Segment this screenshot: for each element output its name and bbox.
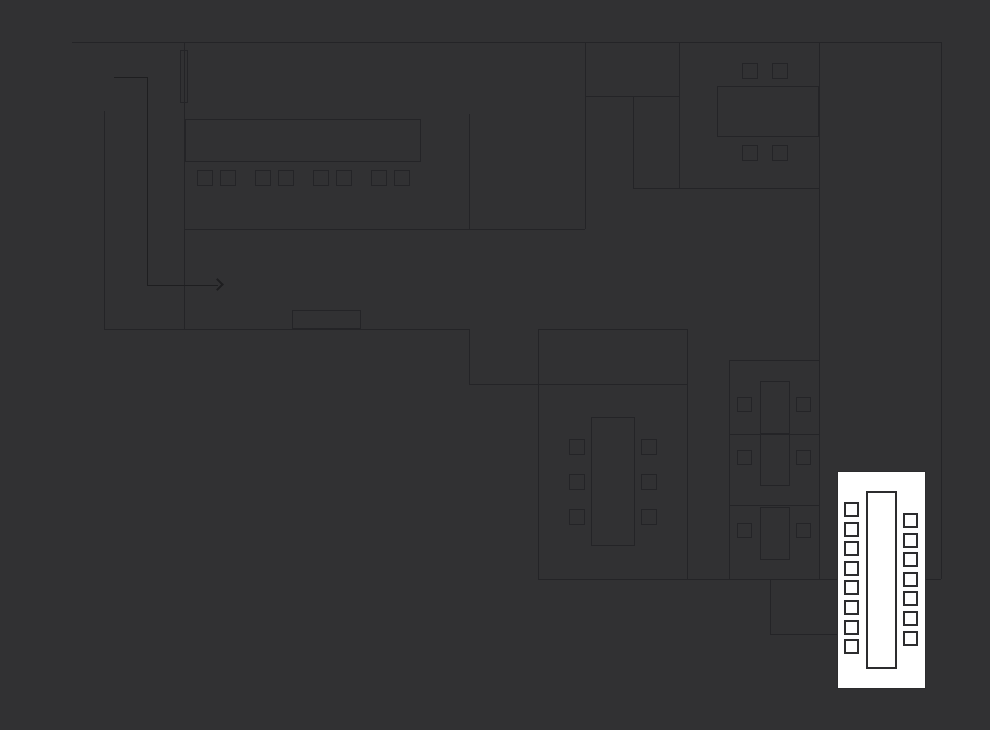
conference-chair (569, 439, 585, 455)
openspace-chair (255, 170, 271, 186)
selected-room-chair-left[interactable] (844, 639, 859, 654)
entrance-arrow-line (147, 77, 148, 285)
wall-openspace-right (585, 42, 586, 229)
desk-1 (760, 381, 790, 434)
selected-room-chair-left[interactable] (844, 580, 859, 595)
wall-conference-left (538, 329, 539, 579)
openspace-chair (220, 170, 236, 186)
desk-chair (737, 523, 752, 538)
wall-right-wing (819, 42, 820, 579)
outer-wall-right (941, 42, 942, 579)
meeting-north-chair (742, 63, 758, 79)
wall-openspace-bottom (185, 229, 585, 230)
desk-2 (760, 434, 790, 486)
wall-closet-left (633, 96, 634, 188)
selected-room-table (866, 491, 897, 669)
wall-closet-bottom (633, 188, 819, 189)
wall-desk-room-left (729, 360, 730, 579)
meeting-north-chair (772, 145, 788, 161)
meeting-north-chair (772, 63, 788, 79)
desk-chair (737, 397, 752, 412)
wall-conference-right (687, 329, 688, 579)
wall-notch-left (770, 579, 771, 634)
wall-small-room-bottom (585, 96, 679, 97)
selected-room-chair-left[interactable] (844, 561, 859, 576)
table-meeting-north (717, 86, 819, 137)
conference-chair (569, 509, 585, 525)
wall-lobby-bottom (104, 329, 469, 330)
cabinet-lobby (292, 310, 361, 329)
openspace-chair (278, 170, 294, 186)
wall-desk-room-top (729, 360, 819, 361)
desk-chair (796, 450, 811, 465)
selected-room-chair-left[interactable] (844, 620, 859, 635)
openspace-chair (336, 170, 352, 186)
desk-chair (796, 523, 811, 538)
selected-room-chair-right[interactable] (903, 611, 918, 626)
floorplan-canvas (0, 0, 990, 730)
selected-room-chair-left[interactable] (844, 541, 859, 556)
conference-chair (641, 509, 657, 525)
wall-corridor-step-bottom (469, 384, 687, 385)
selected-room-chair-right[interactable] (903, 572, 918, 587)
table-conference (591, 417, 635, 546)
wall-meeting-room-left (679, 42, 680, 188)
selected-room-chair-left[interactable] (844, 502, 859, 517)
openspace-chair (197, 170, 213, 186)
selected-room-chair-left[interactable] (844, 522, 859, 537)
selected-room-chair-right[interactable] (903, 513, 918, 528)
entrance-arrow-head-icon (211, 278, 224, 291)
door-leaf (180, 50, 188, 103)
selected-room-chair-right[interactable] (903, 591, 918, 606)
wall-lobby-left (104, 111, 105, 329)
outer-wall-top (72, 42, 941, 43)
entrance-arrow-line (114, 77, 147, 78)
wall-corridor-step-left (469, 329, 470, 384)
openspace-chair (313, 170, 329, 186)
desk-chair (796, 397, 811, 412)
selected-room-chair-right[interactable] (903, 631, 918, 646)
selected-room-chair-right[interactable] (903, 533, 918, 548)
selected-room-chair-left[interactable] (844, 600, 859, 615)
meeting-north-chair (742, 145, 758, 161)
conference-chair (641, 474, 657, 490)
wall-notch-bottom (770, 634, 837, 635)
conference-chair (569, 474, 585, 490)
table-openspace (185, 119, 421, 162)
entrance-arrow-line (147, 285, 218, 286)
conference-chair (641, 439, 657, 455)
desk-3 (760, 507, 790, 560)
openspace-chair (394, 170, 410, 186)
selected-room-chair-right[interactable] (903, 552, 918, 567)
wall-desk-divider-2 (729, 505, 819, 506)
wall-conference-top (538, 329, 687, 330)
openspace-chair (371, 170, 387, 186)
desk-chair (737, 450, 752, 465)
wall-openspace-partition (469, 114, 470, 229)
